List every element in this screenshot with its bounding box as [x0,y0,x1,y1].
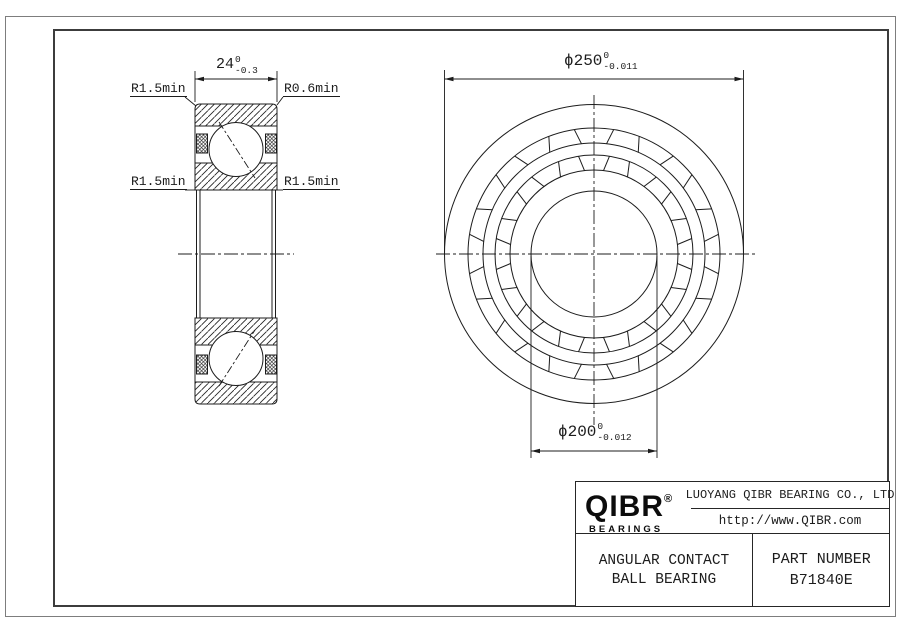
cage-pocket-edge [579,337,585,351]
cage-section-lower-right [266,355,277,374]
cage-pocket-edge [579,156,585,170]
cage-pocket-edge [627,162,629,177]
front-view [436,70,755,458]
cage-pocket-edge [470,234,484,241]
drawing-sheet: 24 0 -0.3 ϕ250 0 -0.011 ϕ200 0 -0.012 R1… [0,0,900,636]
title-block-detail-row: ANGULAR CONTACT BALL BEARING PART NUMBER… [576,533,889,607]
cage-pocket-edge [671,287,686,289]
cage-pocket-edge [683,320,692,333]
radius-label-top-right: R0.6min [283,81,340,97]
cage-pocket-edge [496,239,510,245]
cage-pocket-edge [704,267,718,274]
cage-pocket-edge [476,298,492,299]
cage-pocket-edge [502,287,517,289]
cage-pocket-edge [671,219,686,221]
cage-pocket-edge [704,234,718,241]
cage-pocket-edge [683,175,692,188]
cage-pocket-edge [627,331,629,346]
section-view [178,71,294,404]
cage-pocket-edge [662,304,671,316]
cage-section-upper-left [197,134,208,153]
title-block-header-row: QIBR® BEARINGS LUOYANG QIBR BEARING CO.,… [576,482,889,533]
cage-pocket-edge [660,343,673,352]
cage-pocket-edge [644,322,656,331]
cage-section-upper-right [266,134,277,153]
cage-pocket-edge [559,162,561,177]
product-type-line1: ANGULAR CONTACT [599,553,730,569]
cage-pocket-edge [549,356,550,372]
company-website: http://www.QIBR.com [691,509,889,533]
outer-dia-tolerance: 0 -0.011 [603,51,637,71]
radius-label-top-left: R1.5min [130,81,187,97]
cage-pocket-edge [696,209,712,210]
cage-pocket-edge [660,156,673,165]
cage-pocket-edge [496,320,505,333]
bore-dia-dimension-text: ϕ200 0 -0.012 [558,424,632,442]
cage-pocket-edge [644,177,656,186]
cage-pocket-edge [607,130,614,144]
cage-pocket-edge [496,264,510,270]
cage-pocket-edge [532,322,544,331]
cage-pocket-edge [549,136,550,152]
company-name: LUOYANG QIBR BEARING CO., LTD [691,482,889,509]
radius-label-mid-left: R1.5min [130,174,187,190]
cage-pocket-edge [496,175,505,188]
cage-pocket-edge [604,337,610,351]
cage-pocket-edge [574,130,581,144]
cage-pocket-edge [638,356,639,372]
cage-pocket-edge [476,209,492,210]
cage-section-lower-left [197,355,208,374]
title-block: QIBR® BEARINGS LUOYANG QIBR BEARING CO.,… [575,481,890,607]
cage-pocket-edge [502,219,517,221]
cage-pocket-edge [677,264,691,270]
radius-label-mid-right: R1.5min [283,174,340,190]
company-info-cell: LUOYANG QIBR BEARING CO., LTD http://www… [691,482,889,533]
part-number-cell: PART NUMBER B71840E [752,534,890,607]
cage-pocket-edge [517,304,526,316]
logo-wordmark: QIBR® [585,483,691,523]
bore-dia-value: ϕ200 [558,424,596,441]
ball-upper [209,123,263,177]
width-value: 24 [216,57,234,73]
outer-dia-dimension-text: ϕ250 0 -0.011 [564,53,638,71]
cage-pocket-edge [515,343,528,352]
registered-trademark-icon: ® [664,493,672,505]
bore-dia-tolerance: 0 -0.012 [597,422,631,442]
company-logo: QIBR® BEARINGS [585,483,691,532]
width-dimension-text: 24 0 -0.3 [216,57,258,75]
cage-pocket-edge [532,177,544,186]
cage-pocket-edge [696,298,712,299]
part-number-label: PART NUMBER [772,551,871,568]
cage-pocket-edge [559,331,561,346]
cage-pocket-edge [574,364,581,378]
cage-pocket-edge [662,192,671,204]
cage-pocket-edge [517,192,526,204]
ball-lower [209,332,263,386]
cage-pocket-edge [607,364,614,378]
cage-pocket-edge [638,136,639,152]
cage-pocket-edge [470,267,484,274]
product-type-line2: BALL BEARING [612,572,716,588]
product-type-cell: ANGULAR CONTACT BALL BEARING [576,534,752,607]
cage-pocket-edge [677,239,691,245]
width-tolerance: 0 -0.3 [235,55,258,75]
cage-pocket-edge [515,156,528,165]
outer-dia-value: ϕ250 [564,53,602,70]
part-number-value: B71840E [790,572,853,589]
cage-pocket-edge [604,156,610,170]
